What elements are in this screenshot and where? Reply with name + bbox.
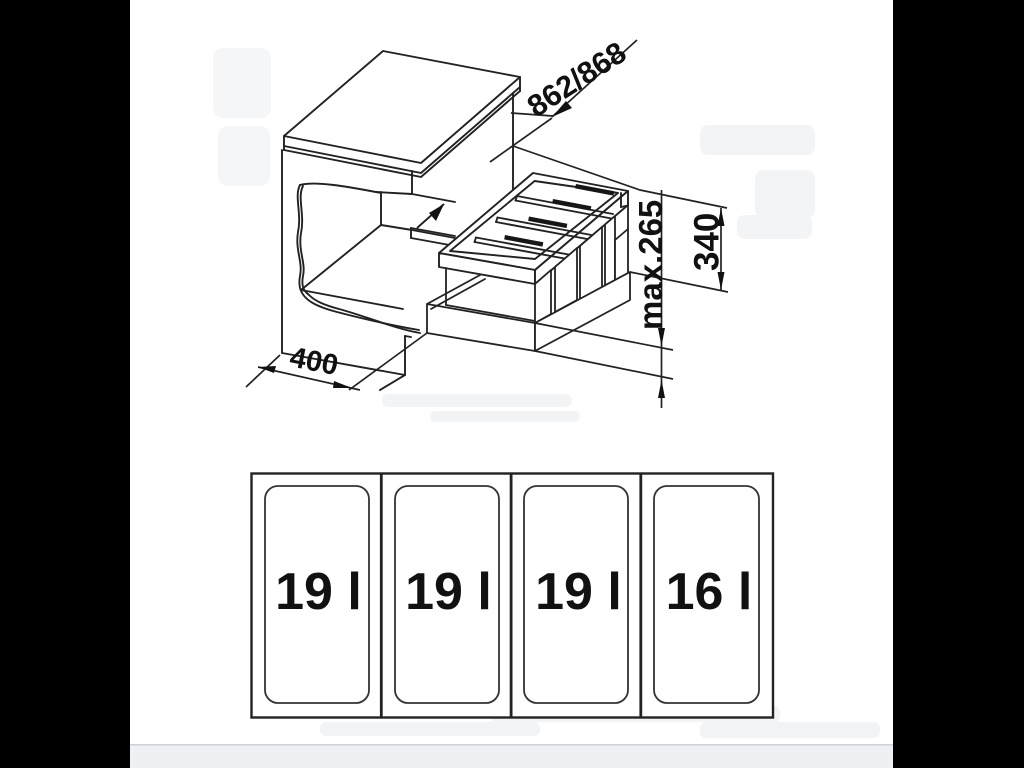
svg-text:16 l: 16 l bbox=[666, 563, 753, 621]
svg-text:19 l: 19 l bbox=[405, 563, 492, 621]
svg-text:340: 340 bbox=[688, 213, 727, 271]
svg-text:max.265: max.265 bbox=[632, 200, 669, 330]
svg-text:19 l: 19 l bbox=[535, 563, 622, 621]
svg-text:19 l: 19 l bbox=[275, 563, 362, 621]
